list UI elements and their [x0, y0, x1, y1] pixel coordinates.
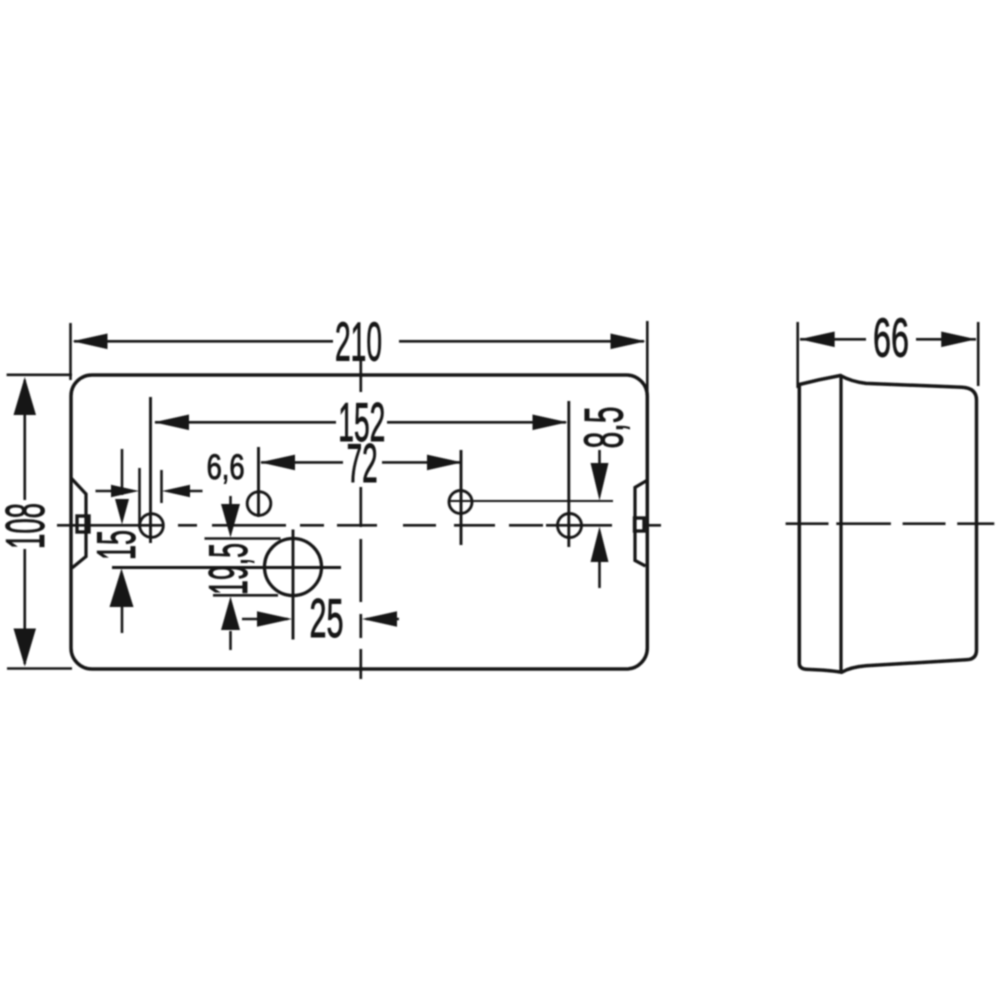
svg-text:210: 210: [335, 311, 382, 373]
svg-text:25: 25: [310, 587, 344, 649]
svg-text:19,5: 19,5: [197, 543, 259, 595]
svg-text:66: 66: [873, 307, 909, 369]
svg-text:72: 72: [347, 432, 378, 494]
svg-text:108: 108: [0, 503, 56, 549]
svg-text:8,5: 8,5: [573, 407, 635, 449]
svg-text:15: 15: [85, 530, 147, 560]
svg-text:6,6: 6,6: [207, 448, 245, 487]
